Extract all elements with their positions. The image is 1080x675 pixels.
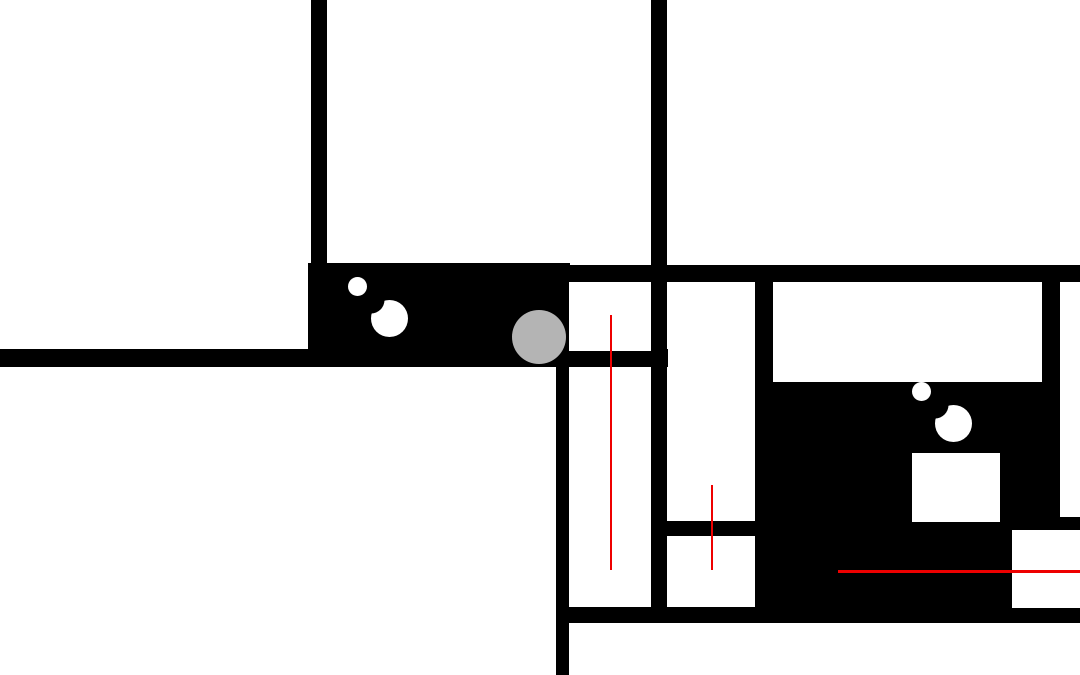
goal-bullseye-field-core-dot [912, 382, 931, 401]
goal-bullseye-corridor-core-dot [348, 277, 367, 296]
path-trace-horizontal-right [838, 570, 1080, 573]
goal-bullseye-field-icon [935, 405, 972, 442]
white-box-in-field [912, 453, 1000, 522]
path-trace-vertical-middle [711, 485, 713, 570]
simulation-map-canvas[interactable] [0, 0, 1080, 675]
room-far-right-column [1060, 282, 1080, 517]
goal-bullseye-field-gap-ring [921, 391, 948, 418]
white-box-bottom-right [1012, 530, 1080, 608]
path-trace-vertical-left [610, 315, 612, 570]
wall-vertical-center [651, 0, 667, 607]
agent-circle[interactable] [512, 310, 566, 364]
goal-bullseye-corridor-gap-ring [357, 286, 384, 313]
wall-vertical-far-right [1042, 265, 1060, 395]
wall-vertical-left-lower [556, 349, 569, 675]
wall-vertical-middle-right [755, 282, 773, 623]
room-right-wide [773, 282, 1042, 382]
wall-vertical-top-left [311, 0, 327, 265]
goal-bullseye-corridor-icon [371, 300, 408, 337]
